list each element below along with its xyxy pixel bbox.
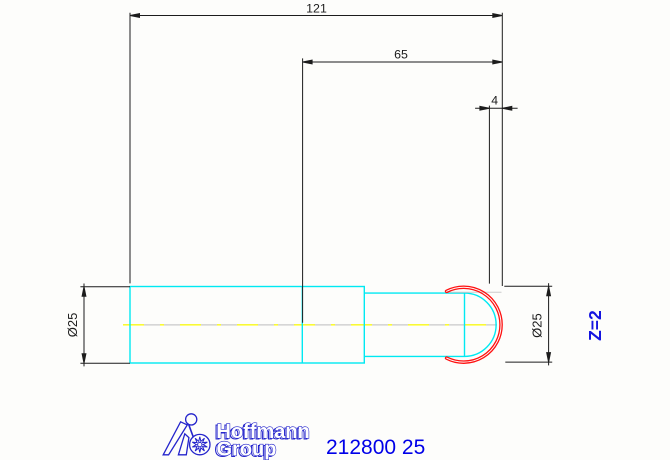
svg-text:Ø25: Ø25 [65,313,80,338]
svg-text:Z=2: Z=2 [585,310,605,341]
svg-text:Ø25: Ø25 [530,313,545,338]
svg-text:4: 4 [491,94,498,108]
svg-text:Group: Group [217,439,277,460]
svg-text:121: 121 [306,1,327,15]
svg-text:65: 65 [394,48,408,62]
svg-text:212800 25: 212800 25 [326,436,425,459]
